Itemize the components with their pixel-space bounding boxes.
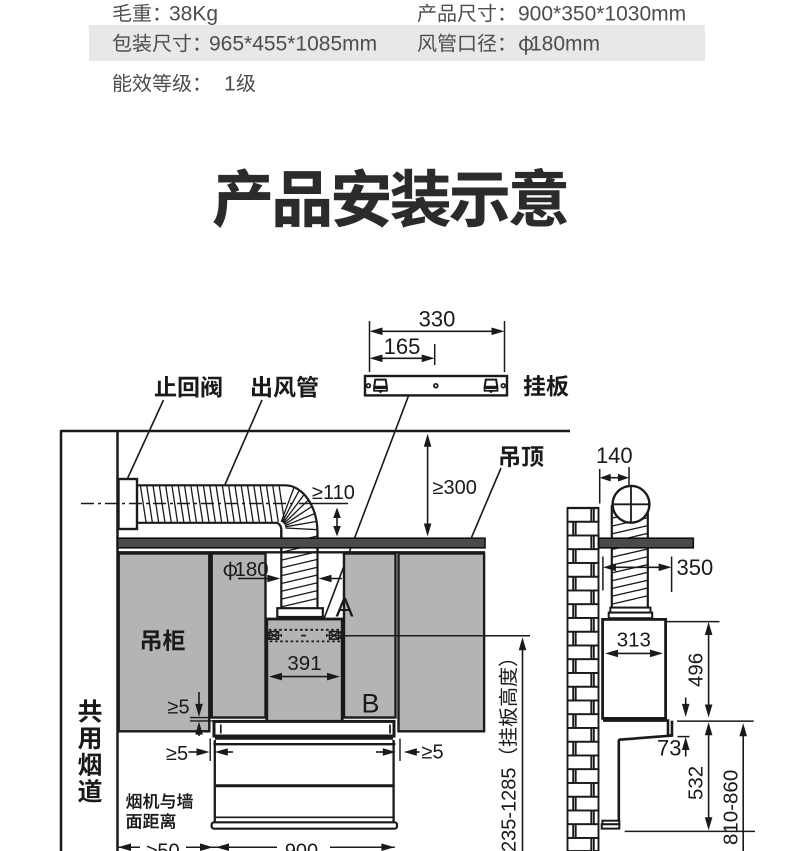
svg-text:313: 313: [617, 629, 651, 652]
svg-text:496: 496: [685, 653, 708, 687]
svg-text:900: 900: [285, 840, 318, 851]
svg-text:73: 73: [657, 736, 681, 761]
svg-text:A: A: [336, 593, 354, 623]
svg-text:1: 1: [224, 73, 236, 96]
svg-text:≥300: ≥300: [433, 477, 477, 499]
svg-text:965*455*1085mm: 965*455*1085mm: [209, 33, 377, 56]
svg-text:≥5: ≥5: [166, 743, 188, 765]
svg-text:180mm: 180mm: [530, 33, 600, 56]
svg-text:900*350*1030mm: 900*350*1030mm: [518, 3, 686, 26]
svg-text:235-1285: 235-1285: [499, 767, 521, 851]
svg-text:180: 180: [235, 558, 269, 581]
svg-text:391: 391: [287, 652, 321, 675]
svg-text:810-860: 810-860: [720, 770, 743, 845]
svg-text:330: 330: [419, 307, 456, 332]
svg-text:≥5: ≥5: [168, 697, 190, 719]
svg-text:≥50: ≥50: [146, 840, 179, 851]
svg-text:38Kg: 38Kg: [169, 3, 218, 26]
svg-text:≥5: ≥5: [422, 742, 444, 764]
svg-text:532: 532: [685, 766, 708, 800]
svg-text:B: B: [362, 689, 380, 719]
svg-text:165: 165: [384, 334, 421, 359]
svg-text:350: 350: [677, 555, 714, 580]
svg-text:140: 140: [596, 443, 633, 468]
svg-text:≥110: ≥110: [312, 482, 355, 504]
